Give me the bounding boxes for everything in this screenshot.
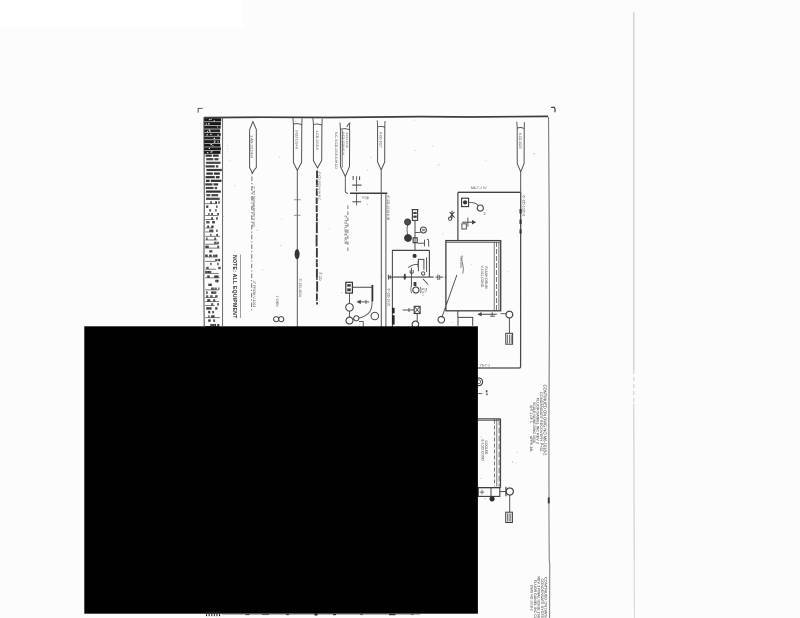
svg-text:M6-7-J ¾″: M6-7-J ¾″ bbox=[471, 186, 488, 190]
svg-text:PI: PI bbox=[483, 212, 487, 215]
svg-text:6" TO FLARE HDR: 6" TO FLARE HDR bbox=[344, 216, 348, 245]
svg-text:3-CD-1014-6: 3-CD-1014-6 bbox=[295, 130, 299, 149]
svg-text:2" FROM V-1021: 2" FROM V-1021 bbox=[252, 281, 256, 308]
svg-text:6-CD-1016-61-H: 6-CD-1016-61-H bbox=[342, 132, 346, 155]
svg-text:6-CD-1017: 6-CD-1017 bbox=[378, 132, 382, 148]
svg-text:4"-CD: 4"-CD bbox=[318, 272, 322, 281]
svg-text:4"-CD-1015-6-IH N.C.: 4"-CD-1015-6-IH N.C. bbox=[318, 172, 322, 201]
svg-text:COOLER: COOLER bbox=[484, 441, 488, 456]
svg-text:6-CD-1020: 6-CD-1020 bbox=[518, 133, 522, 149]
svg-text:6"-CD-1020-6: 6"-CD-1020-6 bbox=[522, 196, 526, 217]
svg-text:N.C. 6-CD-1016-6-IH CO: N.C. 6-CD-1016-6-IH CO bbox=[334, 132, 338, 169]
svg-text:6"-CD-1018-6-IH: 6"-CD-1018-6-IH bbox=[386, 196, 390, 221]
svg-text:2" TO SEPARATOR V-102: 2" TO SEPARATOR V-102 bbox=[252, 186, 256, 227]
svg-text:6"-CD-1019: 6"-CD-1019 bbox=[387, 289, 391, 306]
svg-text:NOTE: ALL EQUIPMENT: NOTE: ALL EQUIPMENT bbox=[231, 255, 237, 319]
svg-text:SHT 2 OF 4: SHT 2 OF 4 bbox=[529, 405, 533, 423]
svg-text:3"-CD-1014: 3"-CD-1014 bbox=[298, 279, 302, 297]
svg-text:APPR JML: APPR JML bbox=[529, 436, 533, 452]
svg-text:4-CD-1015-6: 4-CD-1015-6 bbox=[315, 131, 319, 150]
svg-text:1" DRN: 1" DRN bbox=[275, 296, 279, 308]
svg-text:DWG NO 1018-2: DWG NO 1018-2 bbox=[529, 585, 533, 611]
svg-text:E-1022 COND: E-1022 COND bbox=[480, 440, 484, 462]
svg-text:5¾: 5¾ bbox=[424, 288, 428, 293]
svg-text:2-AD-1012-8-H: 2-AD-1012-8-H bbox=[250, 136, 254, 159]
svg-text:V-1021 COND: V-1021 COND bbox=[480, 266, 484, 288]
svg-text:6-CD-1016: 6-CD-1016 bbox=[345, 133, 349, 148]
svg-text:LVL RNG: LVL RNG bbox=[459, 257, 463, 269]
svg-text:¼″μμ: ¼″μμ bbox=[362, 196, 370, 200]
svg-text:FLASH DRUM: FLASH DRUM bbox=[484, 267, 488, 289]
svg-text:Y6-7-J: Y6-7-J bbox=[480, 363, 490, 367]
